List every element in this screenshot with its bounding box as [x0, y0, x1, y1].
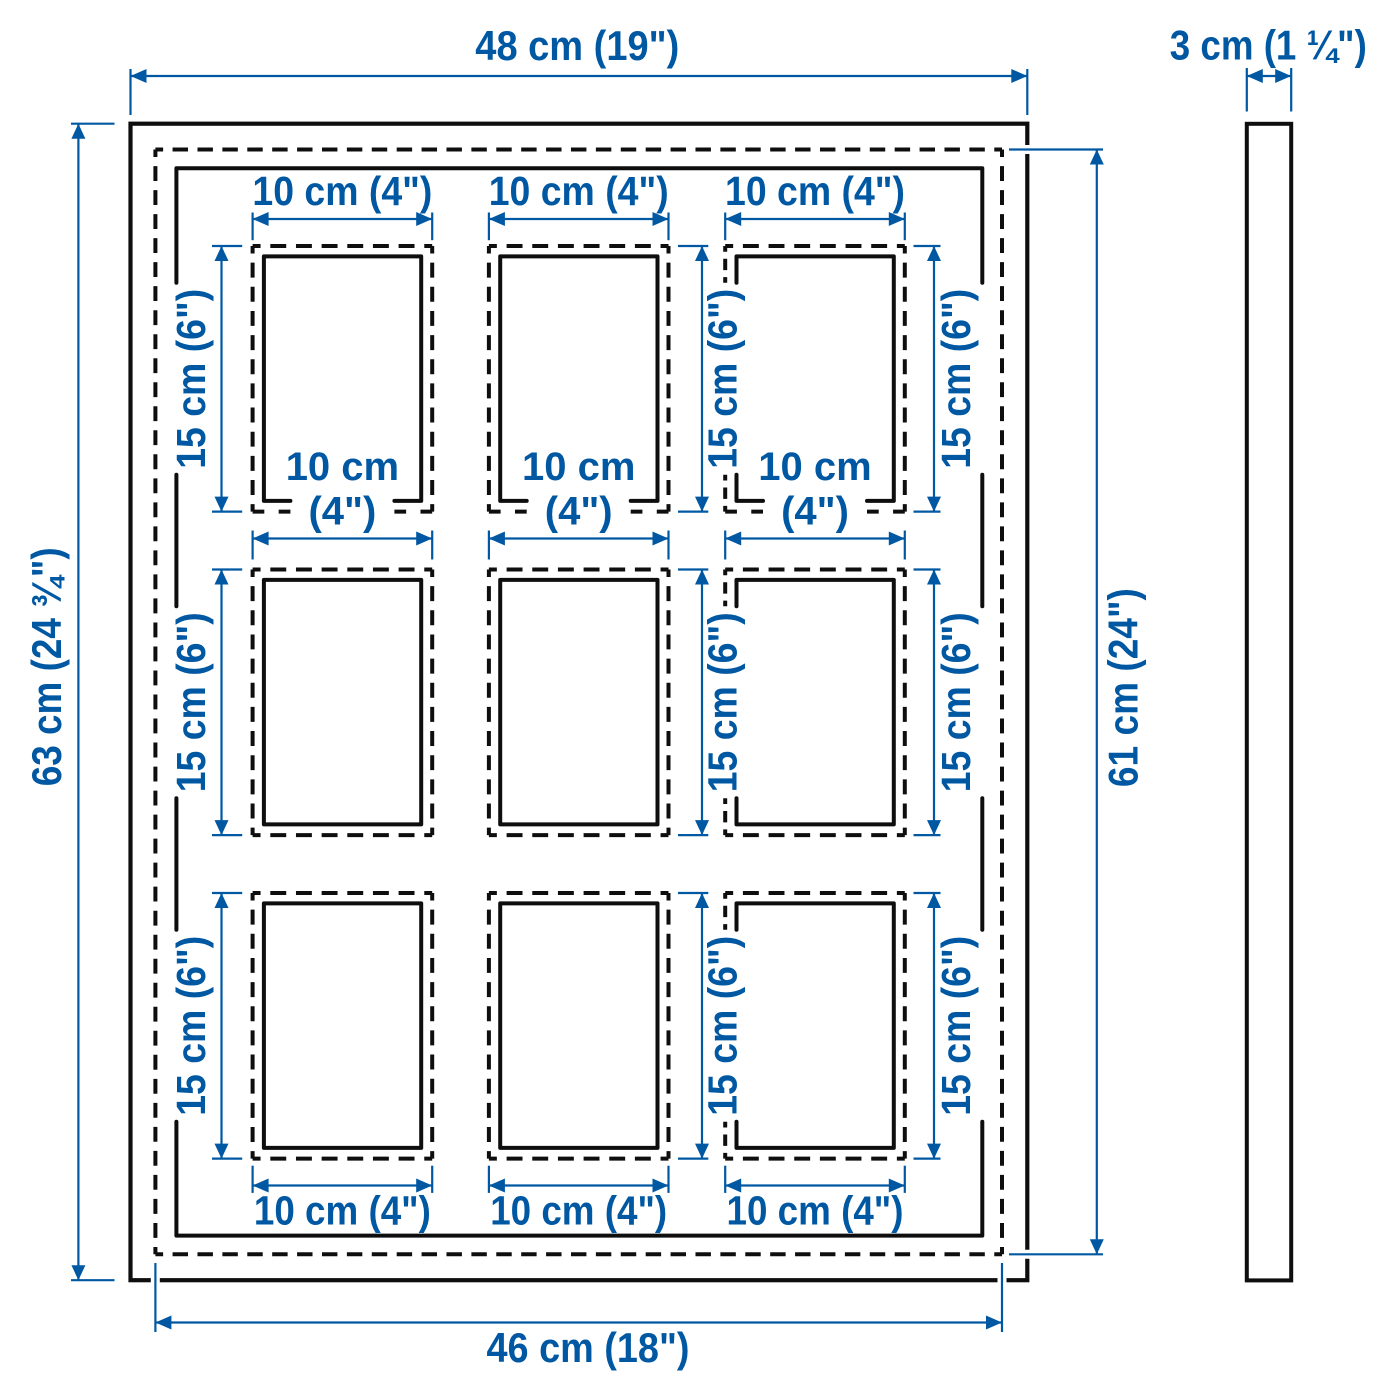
svg-text:15 cm (6"): 15 cm (6")	[933, 612, 979, 792]
svg-text:15 cm (6"): 15 cm (6")	[700, 936, 746, 1116]
svg-text:10 cm (4"): 10 cm (4")	[254, 1188, 431, 1234]
svg-text:15 cm (6"): 15 cm (6")	[168, 289, 214, 469]
svg-text:10 cm (4"): 10 cm (4")	[727, 1188, 904, 1234]
svg-text:3 cm (1 ¼"): 3 cm (1 ¼")	[1170, 22, 1367, 69]
svg-text:10 cm (4"): 10 cm (4")	[725, 168, 905, 214]
svg-text:(4"): (4")	[545, 490, 613, 534]
svg-text:15 cm (6"): 15 cm (6")	[700, 612, 746, 792]
svg-text:10 cm: 10 cm	[286, 445, 399, 489]
svg-text:(4"): (4")	[781, 490, 849, 534]
svg-text:48 cm (19"): 48 cm (19")	[475, 22, 679, 69]
svg-text:10 cm (4"): 10 cm (4")	[489, 168, 669, 214]
svg-text:61 cm (24"): 61 cm (24")	[1099, 588, 1146, 787]
svg-text:15 cm (6"): 15 cm (6")	[168, 936, 214, 1116]
svg-text:(4"): (4")	[308, 490, 376, 534]
svg-text:10 cm (4"): 10 cm (4")	[490, 1188, 667, 1234]
svg-text:46 cm (18"): 46 cm (18")	[487, 1324, 690, 1371]
svg-text:15 cm (6"): 15 cm (6")	[700, 289, 746, 469]
svg-text:15 cm (6"): 15 cm (6")	[933, 936, 979, 1116]
svg-text:15 cm (6"): 15 cm (6")	[933, 289, 979, 469]
svg-text:63 cm (24 ¾"): 63 cm (24 ¾")	[23, 547, 70, 786]
svg-text:15 cm (6"): 15 cm (6")	[168, 612, 214, 792]
svg-text:10 cm: 10 cm	[758, 445, 871, 489]
svg-text:10 cm (4"): 10 cm (4")	[252, 168, 432, 214]
svg-text:10 cm: 10 cm	[522, 445, 635, 489]
